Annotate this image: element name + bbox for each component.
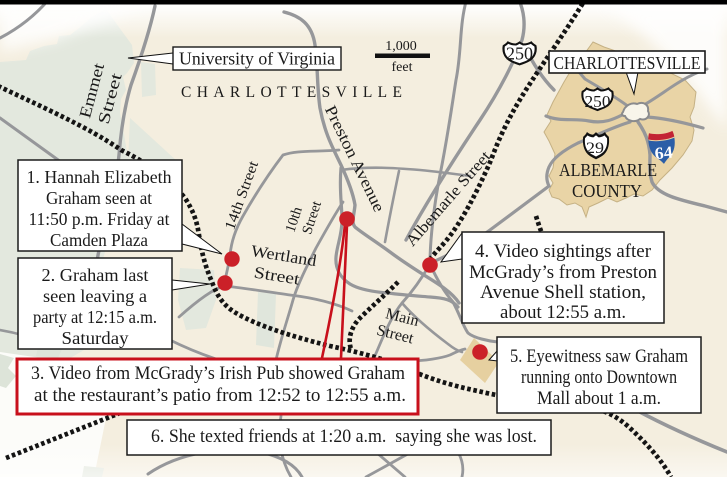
svg-text:ALBEMARLE: ALBEMARLE <box>559 160 657 180</box>
svg-text:Camden Plaza: Camden Plaza <box>50 230 148 250</box>
svg-text:seen leaving a: seen leaving a <box>43 286 147 306</box>
svg-text:running onto Downtown: running onto Downtown <box>521 367 677 388</box>
svg-text:6. She texted friends at 1:20: 6. She texted friends at 1:20 a.m. sayin… <box>151 426 537 447</box>
svg-text:250: 250 <box>506 44 533 64</box>
svg-text:Graham seen at: Graham seen at <box>46 188 152 208</box>
svg-text:2. Graham last: 2. Graham last <box>42 265 149 285</box>
svg-text:29: 29 <box>586 140 604 157</box>
svg-text:64: 64 <box>654 142 674 163</box>
svg-text:feet: feet <box>392 60 413 75</box>
svg-text:at the restaurant’s patio from: at the restaurant’s patio from 12:52 to … <box>34 385 406 406</box>
svg-text:CHARLOTTESVILLE: CHARLOTTESVILLE <box>554 53 701 73</box>
svg-text:5. Eyewitness saw Graham: 5. Eyewitness saw Graham <box>510 346 688 367</box>
svg-text:250: 250 <box>585 92 611 111</box>
svg-text:McGrady’s from Preston: McGrady’s from Preston <box>469 262 657 283</box>
svg-text:Mall about 1 a.m.: Mall about 1 a.m. <box>537 388 661 409</box>
svg-text:1. Hannah Elizabeth: 1. Hannah Elizabeth <box>27 167 172 187</box>
svg-text:11:50 p.m. Friday at: 11:50 p.m. Friday at <box>29 209 170 229</box>
svg-text:COUNTY: COUNTY <box>572 181 642 201</box>
svg-text:about 12:55 a.m.: about 12:55 a.m. <box>500 302 626 323</box>
svg-text:CHARLOTTESVILLE: CHARLOTTESVILLE <box>181 84 408 101</box>
svg-text:party at 12:15 a.m.: party at 12:15 a.m. <box>33 307 157 327</box>
svg-text:University of Virginia: University of Virginia <box>179 49 335 69</box>
svg-text:Saturday: Saturday <box>62 328 129 348</box>
svg-text:3. Video from McGrady’s Irish: 3. Video from McGrady’s Irish Pub showed… <box>31 363 405 384</box>
svg-text:Avenue Shell station,: Avenue Shell station, <box>480 282 646 303</box>
svg-text:1,000: 1,000 <box>385 39 417 54</box>
svg-text:4. Video sightings after: 4. Video sightings after <box>475 241 652 262</box>
